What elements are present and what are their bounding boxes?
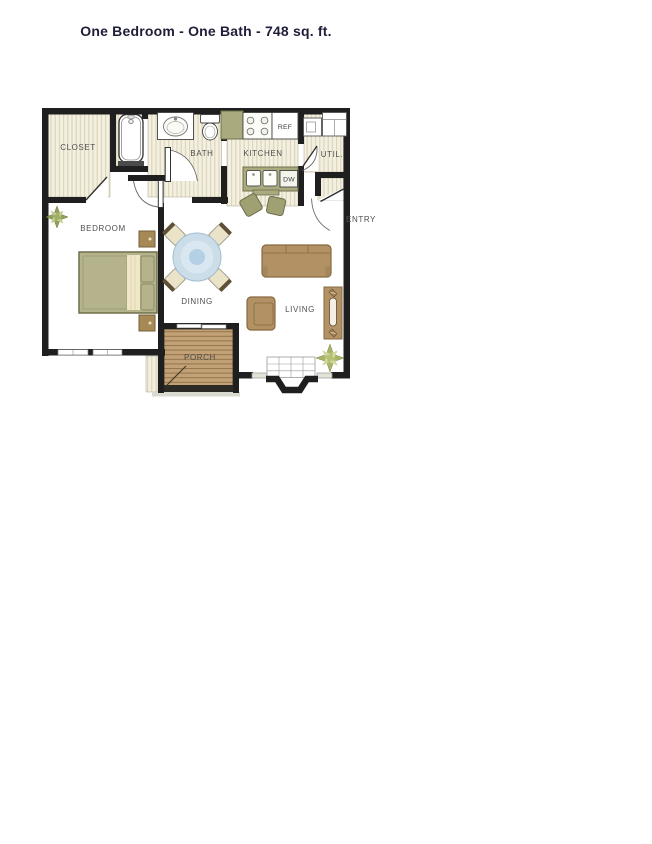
- closet-label: CLOSET: [60, 143, 96, 152]
- stove-burner-4: [261, 128, 268, 135]
- sliding-door-panel-1: [177, 324, 201, 328]
- bathtub-drain: [129, 119, 133, 123]
- bathtub-faucet-plate: [128, 116, 134, 119]
- vanity-faucet: [174, 117, 177, 120]
- living-window-sill-right: [317, 373, 332, 378]
- page-title: One Bedroom - One Bath - 748 sq. ft.: [80, 23, 331, 39]
- stove-burner-2: [261, 117, 268, 124]
- sliding-door-panel-2: [202, 325, 226, 329]
- wall-closet-bottom: [42, 197, 86, 203]
- wall-bottom-a: [237, 372, 253, 379]
- console-lamp: [330, 298, 337, 326]
- dishwasher-label: DW: [283, 177, 295, 184]
- nightstand-top: [139, 231, 155, 247]
- wall-left: [42, 108, 49, 356]
- bedroom-furniture: [79, 231, 157, 331]
- double-sink-left: [247, 171, 261, 187]
- living-window-sill-left: [252, 373, 267, 378]
- living-label: LIVING: [285, 305, 315, 314]
- dining-label: DINING: [181, 297, 213, 306]
- living-plant: [314, 342, 345, 373]
- nightstand-top-knob: [149, 238, 152, 241]
- stove-burner-3: [247, 128, 254, 135]
- bedroom-label: BEDROOM: [80, 224, 126, 233]
- dining-table-center: [189, 249, 205, 265]
- double-sink-right-drain: [269, 173, 272, 176]
- refrigerator-label: REF: [278, 124, 292, 131]
- deck-shadow: [152, 392, 240, 397]
- bedroom-door-leaf: [158, 181, 163, 208]
- utility-label: UTIL.: [321, 150, 344, 159]
- floor-plan-canvas: One Bedroom - One Bath - 748 sq. ft.: [0, 0, 652, 844]
- bed-pillow-1: [141, 256, 154, 282]
- porch-deck: [152, 329, 240, 397]
- sofa: [262, 245, 331, 277]
- fireplace-bay: [266, 379, 318, 390]
- sofa-arm-right: [325, 266, 330, 276]
- living-furniture: [247, 245, 342, 339]
- nightstand-bottom-knob: [149, 322, 152, 325]
- bed-pillow-2: [141, 284, 154, 310]
- fireplace-group: [266, 357, 318, 390]
- wall-porch-right: [233, 323, 239, 393]
- bathtub-base: [118, 161, 144, 166]
- wall-bottom-b: [331, 372, 350, 379]
- porch-label: PORCH: [184, 353, 216, 362]
- toilet-tank: [201, 115, 220, 124]
- nightstand-bottom: [139, 315, 155, 331]
- double-sink-right: [263, 171, 277, 187]
- entry-door-arc: [312, 199, 331, 231]
- entry-label: ENTRY: [346, 215, 376, 224]
- wall-closet-right: [110, 108, 116, 172]
- sofa-arm-left: [263, 266, 268, 276]
- counter-sink-bump: [253, 190, 279, 195]
- wall-kitchen-right-lower: [298, 166, 304, 206]
- stoop-floor: [146, 356, 158, 392]
- wall-kitchen-left-lower: [221, 166, 227, 204]
- floor-plan-page: One Bedroom - One Bath - 748 sq. ft.: [0, 0, 652, 844]
- wall-vestibule-left: [315, 172, 321, 196]
- bath-door-leaf: [165, 148, 170, 182]
- bath-label: BATH: [190, 149, 213, 158]
- deck-edge-band: [164, 385, 233, 392]
- dining-set: [162, 222, 232, 292]
- bar-stool-2: [266, 196, 286, 216]
- counter-top-left: [221, 111, 243, 139]
- stove: [243, 113, 272, 140]
- stove-burner-1: [247, 117, 254, 124]
- wall-bath-left-stub: [142, 108, 148, 119]
- kitchen-label: KITCHEN: [243, 149, 282, 158]
- double-sink-left-drain: [252, 173, 255, 176]
- wall-right: [344, 108, 351, 378]
- wall-tub-bottom: [110, 166, 148, 172]
- bed-sheet-strip: [127, 255, 140, 310]
